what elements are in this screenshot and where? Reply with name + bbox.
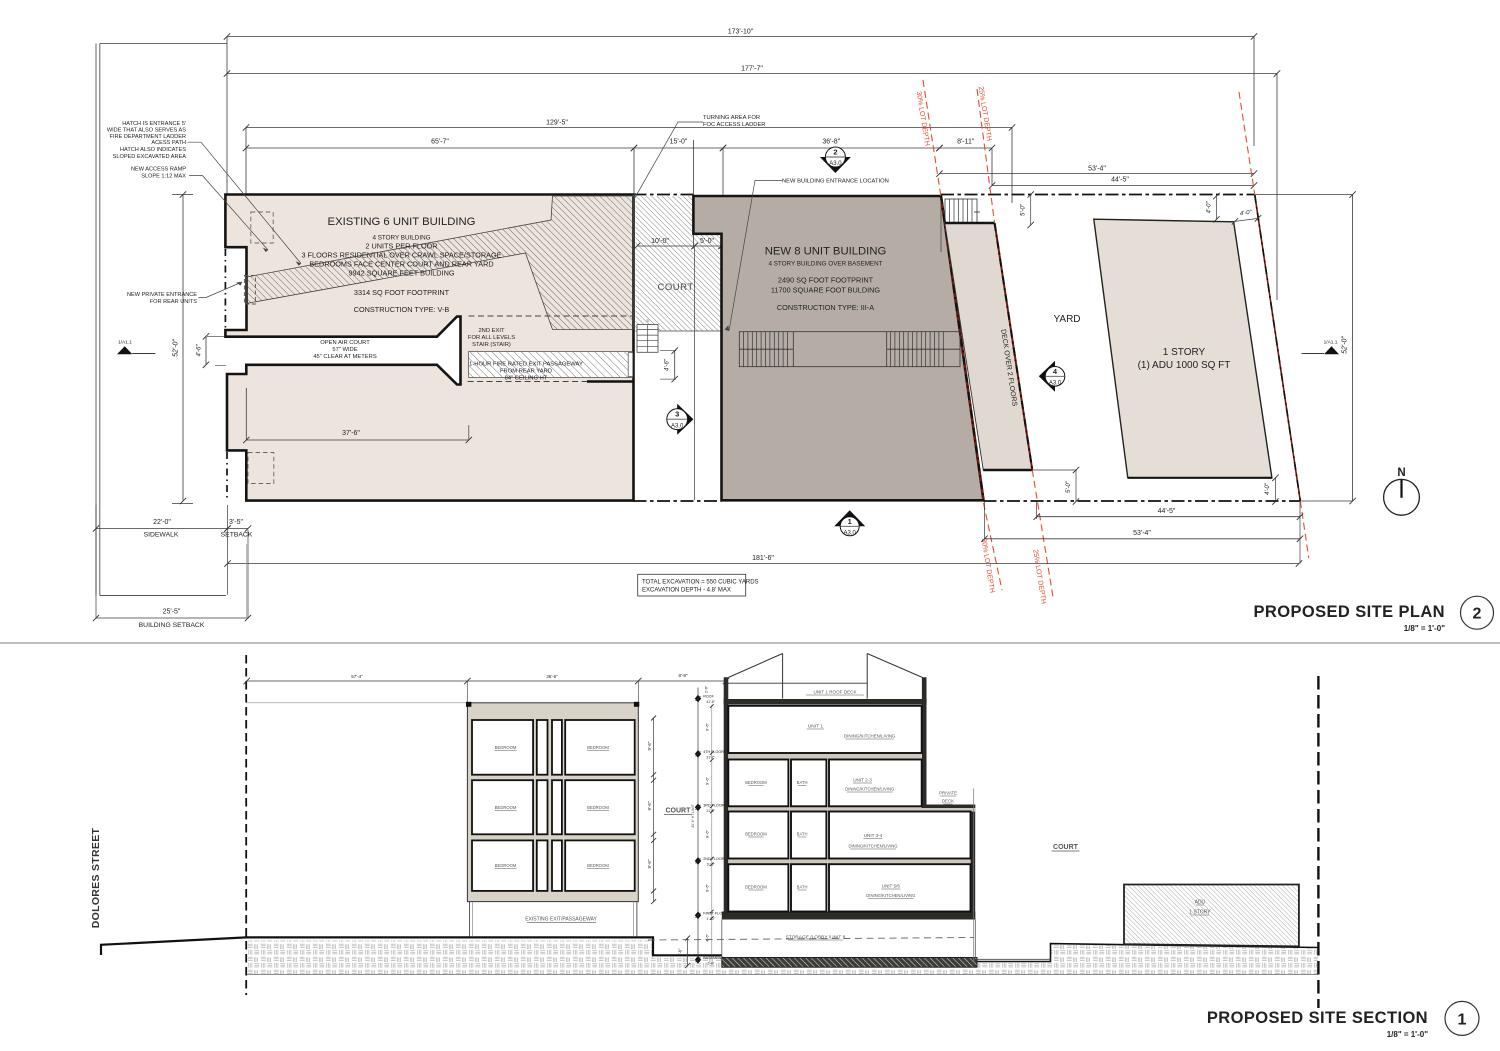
svg-text:FROM REAR YARD: FROM REAR YARD bbox=[500, 369, 552, 375]
svg-text:DECK: DECK bbox=[942, 799, 954, 804]
svg-text:BATH: BATH bbox=[797, 780, 808, 785]
svg-text:9'-6": 9'-6" bbox=[704, 776, 709, 785]
svg-text:1/A1.1: 1/A1.1 bbox=[1324, 340, 1338, 346]
svg-text:57" WIDE: 57" WIDE bbox=[332, 347, 357, 353]
svg-text:EXISTING 6 UNIT BUILDING: EXISTING 6 UNIT BUILDING bbox=[328, 216, 476, 228]
svg-text:HATCH IS ENTRANCE 5': HATCH IS ENTRANCE 5' bbox=[122, 121, 186, 127]
svg-text:4 STORY BUILDING: 4 STORY BUILDING bbox=[372, 234, 430, 241]
svg-text:181'-6": 181'-6" bbox=[752, 555, 774, 562]
svg-text:TURNING AREA FOR: TURNING AREA FOR bbox=[703, 115, 760, 121]
svg-text:SLOPE 1:12 MAX: SLOPE 1:12 MAX bbox=[141, 173, 186, 179]
svg-text:A3.0: A3.0 bbox=[844, 531, 857, 537]
svg-text:3'-5": 3'-5" bbox=[229, 519, 243, 526]
svg-text:NEW PRIVATE ENTRANCE: NEW PRIVATE ENTRANCE bbox=[127, 292, 197, 298]
svg-text:1: 1 bbox=[848, 517, 852, 526]
svg-text:EXISTING EXIT/PASSAGEWAY: EXISTING EXIT/PASSAGEWAY bbox=[525, 917, 597, 923]
svg-text:2 UNITS PER FLOOR: 2 UNITS PER FLOOR bbox=[365, 241, 437, 250]
svg-text:UNIT 3-4: UNIT 3-4 bbox=[864, 833, 883, 838]
svg-text:8'-8": 8'-8" bbox=[679, 673, 688, 678]
svg-text:22'-0": 22'-0" bbox=[153, 519, 171, 526]
svg-text:4'-0": 4'-0" bbox=[1207, 201, 1213, 214]
svg-text:A3.0: A3.0 bbox=[829, 161, 842, 167]
svg-text:FIRE DEPARTMENT LADDER: FIRE DEPARTMENT LADDER bbox=[110, 134, 186, 140]
svg-text:9'-6": 9'-6" bbox=[647, 801, 652, 810]
svg-text:UNIT 5/6: UNIT 5/6 bbox=[882, 884, 901, 889]
svg-text:STORAGE /LOBBY /UNIT 8: STORAGE /LOBBY /UNIT 8 bbox=[786, 935, 846, 941]
svg-text:21'-8": 21'-8" bbox=[706, 809, 715, 813]
svg-text:UNIT 2-3: UNIT 2-3 bbox=[853, 778, 872, 783]
svg-text:2: 2 bbox=[1473, 606, 1482, 623]
svg-text:3314 SQ FOOT FOOTPRINT: 3314 SQ FOOT FOOTPRINT bbox=[354, 288, 450, 297]
svg-text:84" CEILING HT: 84" CEILING HT bbox=[505, 376, 548, 382]
svg-text:NEW BUILDING ENTRANCE LOCATION: NEW BUILDING ENTRANCE LOCATION bbox=[782, 179, 889, 185]
svg-text:10'-0": 10'-0" bbox=[651, 238, 669, 245]
svg-text:25'-5": 25'-5" bbox=[163, 609, 181, 616]
svg-text:31'-7": 31'-7" bbox=[706, 755, 715, 759]
svg-text:2490 SQ FOOT FOOTPRINT: 2490 SQ FOOT FOOTPRINT bbox=[778, 276, 874, 285]
svg-text:BEDROOM: BEDROOM bbox=[587, 805, 609, 810]
svg-text:1/8" = 1'-0": 1/8" = 1'-0" bbox=[1387, 1030, 1428, 1039]
svg-text:4'-0": 4'-0" bbox=[1265, 482, 1271, 495]
svg-text:DINING/KITCHEN/LIVING: DINING/KITCHEN/LIVING bbox=[866, 893, 915, 898]
svg-text:53'-4": 53'-4" bbox=[1088, 166, 1106, 173]
svg-text:HATCH ALSO INDICATES: HATCH ALSO INDICATES bbox=[120, 147, 186, 153]
svg-text:9'-6": 9'-6" bbox=[704, 883, 709, 892]
svg-text:BEDROOM: BEDROOM bbox=[745, 885, 767, 890]
svg-text:CONSTRUCTION TYPE: III-A: CONSTRUCTION TYPE: III-A bbox=[777, 303, 874, 312]
svg-text:N: N bbox=[1397, 467, 1405, 479]
svg-text:COURT: COURT bbox=[658, 282, 694, 293]
svg-text:FOC ACCESS LADDER: FOC ACCESS LADDER bbox=[703, 122, 766, 128]
svg-text:11700 SQUARE FOOT BULDING: 11700 SQUARE FOOT BULDING bbox=[771, 285, 881, 294]
svg-text:STAIR (STAIR): STAIR (STAIR) bbox=[472, 342, 511, 348]
svg-text:9'-6": 9'-6" bbox=[704, 722, 709, 731]
svg-text:DINING/KITCHEN/LIVING: DINING/KITCHEN/LIVING bbox=[845, 787, 894, 792]
svg-text:UNIT 1 ROOF DECK: UNIT 1 ROOF DECK bbox=[813, 690, 857, 695]
svg-text:15'-0": 15'-0" bbox=[670, 139, 688, 146]
svg-text:4'-6": 4'-6" bbox=[704, 933, 709, 942]
svg-text:SIDEWALK: SIDEWALK bbox=[144, 532, 179, 539]
svg-text:A3.0: A3.0 bbox=[1049, 381, 1062, 387]
svg-text:52'-0": 52'-0" bbox=[1342, 336, 1349, 354]
svg-text:ADU: ADU bbox=[1195, 900, 1206, 906]
svg-text:BEDROOM: BEDROOM bbox=[495, 863, 517, 868]
svg-text:NEW 8 UNIT BUILDING: NEW 8 UNIT BUILDING bbox=[765, 246, 887, 258]
svg-text:44'-5": 44'-5" bbox=[1111, 177, 1129, 184]
svg-text:NEW ACCESS RAMP: NEW ACCESS RAMP bbox=[131, 166, 186, 172]
svg-text:1 STORY: 1 STORY bbox=[1163, 347, 1206, 358]
svg-text:3RD FLOOR: 3RD FLOOR bbox=[703, 803, 724, 807]
svg-text:65'-7": 65'-7" bbox=[431, 139, 449, 146]
svg-text:5'-0": 5'-0" bbox=[1021, 203, 1027, 216]
svg-text:1: 1 bbox=[1458, 1012, 1467, 1029]
svg-text:4'-6": 4'-6" bbox=[665, 358, 671, 371]
svg-text:11'-9": 11'-9" bbox=[706, 862, 715, 866]
svg-text:1 STORY: 1 STORY bbox=[1189, 910, 1211, 916]
svg-text:DOLORES STREET: DOLORES STREET bbox=[90, 827, 102, 928]
svg-text:41'-6": 41'-6" bbox=[706, 700, 715, 704]
svg-text:8'-11": 8'-11" bbox=[957, 139, 975, 146]
svg-text:53'-4": 53'-4" bbox=[1133, 530, 1151, 537]
svg-text:A3.0: A3.0 bbox=[671, 423, 684, 429]
svg-text:CONSTRUCTION TYPE: V-B: CONSTRUCTION TYPE: V-B bbox=[354, 305, 450, 314]
svg-text:BEDROOMS FACE CENTER COURT AND: BEDROOMS FACE CENTER COURT AND REAR YARD bbox=[309, 260, 493, 269]
svg-text:PROPOSED SITE SECTION: PROPOSED SITE SECTION bbox=[1207, 1009, 1428, 1027]
svg-text:YARD: YARD bbox=[1053, 314, 1080, 325]
svg-text:4 STORY BUILDING OVER BASEMENT: 4 STORY BUILDING OVER BASEMENT bbox=[768, 260, 882, 267]
svg-text:ACESS PATH: ACESS PATH bbox=[151, 140, 186, 146]
svg-text:9942 SQUARE FEET BUILDING: 9942 SQUARE FEET BUILDING bbox=[348, 268, 454, 277]
svg-text:SETBACK: SETBACK bbox=[221, 532, 253, 539]
svg-text:FOR REAR UNITS: FOR REAR UNITS bbox=[150, 299, 198, 305]
svg-text:BASEMENT: BASEMENT bbox=[703, 956, 724, 960]
svg-text:UNIT 1: UNIT 1 bbox=[808, 724, 823, 730]
svg-text:9'-6": 9'-6" bbox=[647, 741, 652, 750]
svg-text:1/A1.1: 1/A1.1 bbox=[118, 340, 132, 346]
svg-text:BATH: BATH bbox=[797, 885, 808, 890]
svg-text:52'-0": 52'-0" bbox=[173, 339, 180, 357]
svg-text:PROPOSED SITE PLAN: PROPOSED SITE PLAN bbox=[1254, 603, 1445, 621]
svg-text:173'-10": 173'-10" bbox=[728, 29, 754, 36]
svg-text:BATH: BATH bbox=[797, 832, 808, 837]
svg-text:OPEN AIR COURT: OPEN AIR COURT bbox=[320, 340, 370, 346]
svg-text:1/8" = 1'-0": 1/8" = 1'-0" bbox=[1404, 624, 1445, 633]
svg-text:1'-10": 1'-10" bbox=[706, 917, 715, 921]
svg-text:36'-8": 36'-8" bbox=[822, 139, 840, 146]
svg-text:5'-0": 5'-0" bbox=[700, 238, 714, 245]
svg-text:4'-6": 4'-6" bbox=[197, 344, 203, 357]
svg-text:FIRST FLOOR: FIRST FLOOR bbox=[703, 911, 728, 915]
svg-text:PRIVATE: PRIVATE bbox=[939, 791, 957, 796]
svg-text:4TH FLOOR: 4TH FLOOR bbox=[703, 750, 724, 754]
svg-text:129'-5": 129'-5" bbox=[546, 120, 568, 127]
svg-text:COURT: COURT bbox=[665, 808, 691, 815]
svg-text:BEDROOM: BEDROOM bbox=[495, 805, 517, 810]
svg-text:3 FLOORS RESIDENTIAL OVER CRAW: 3 FLOORS RESIDENTIAL OVER CRAWL SPACE/ST… bbox=[301, 251, 501, 260]
svg-text:43'-6" HT LIMIT: 43'-6" HT LIMIT bbox=[691, 804, 695, 828]
svg-text:177'-7": 177'-7" bbox=[741, 66, 763, 73]
svg-text:BEDROOM: BEDROOM bbox=[745, 780, 767, 785]
svg-text:44'-5": 44'-5" bbox=[1158, 508, 1176, 515]
svg-text:2'-6": 2'-6" bbox=[705, 685, 709, 693]
svg-text:1-HOUR FIRE RATED EXIT PASSAGE: 1-HOUR FIRE RATED EXIT PASSAGEWAY bbox=[469, 362, 583, 368]
svg-text:2ND FLOOR: 2ND FLOOR bbox=[703, 857, 724, 861]
svg-text:BUILDING SETBACK: BUILDING SETBACK bbox=[139, 622, 205, 629]
svg-text:BEDROOM: BEDROOM bbox=[587, 863, 609, 868]
svg-text:SLOPED EXCAVATED AREA: SLOPED EXCAVATED AREA bbox=[113, 154, 187, 160]
svg-text:-2'-8": -2'-8" bbox=[706, 961, 714, 965]
svg-text:DINING/KITCHEN/LIVING: DINING/KITCHEN/LIVING bbox=[844, 734, 896, 739]
svg-text:5': 5' bbox=[647, 318, 650, 323]
svg-text:COURT: COURT bbox=[1053, 844, 1079, 851]
svg-text:EXCAVATION DEPTH - 4.8' MAX: EXCAVATION DEPTH - 4.8' MAX bbox=[642, 588, 731, 594]
svg-text:37'-6": 37'-6" bbox=[342, 430, 360, 437]
svg-text:DINING/KITCHEN/LIVING: DINING/KITCHEN/LIVING bbox=[848, 844, 897, 849]
svg-text:BEDROOM: BEDROOM bbox=[745, 832, 767, 837]
svg-text:45" CLEAR AT METERS: 45" CLEAR AT METERS bbox=[313, 354, 377, 360]
svg-text:BEDROOM: BEDROOM bbox=[587, 745, 609, 750]
svg-text:9'-6": 9'-6" bbox=[647, 859, 652, 868]
svg-text:36'-6": 36'-6" bbox=[546, 674, 558, 679]
svg-text:9'-6": 9'-6" bbox=[704, 829, 709, 838]
svg-text:4'-6": 4'-6" bbox=[678, 948, 683, 957]
svg-text:2: 2 bbox=[833, 148, 837, 157]
svg-text:FOR ALL LEVELS: FOR ALL LEVELS bbox=[468, 335, 515, 341]
svg-text:5'-0": 5'-0" bbox=[1066, 480, 1072, 493]
svg-text:TOTAL EXCAVATION = 550 CUBIC Y: TOTAL EXCAVATION = 550 CUBIC YARDS bbox=[642, 580, 759, 586]
svg-text:WIDE THAT ALSO SERVES AS: WIDE THAT ALSO SERVES AS bbox=[107, 127, 186, 133]
svg-text:ROOF: ROOF bbox=[703, 695, 714, 699]
svg-text:2ND EXIT: 2ND EXIT bbox=[478, 328, 505, 334]
svg-text:(1) ADU 1000 SQ FT: (1) ADU 1000 SQ FT bbox=[1138, 360, 1231, 371]
svg-text:3: 3 bbox=[675, 410, 679, 419]
svg-text:57'-4": 57'-4" bbox=[351, 674, 363, 679]
svg-text:BEDROOM: BEDROOM bbox=[495, 745, 517, 750]
